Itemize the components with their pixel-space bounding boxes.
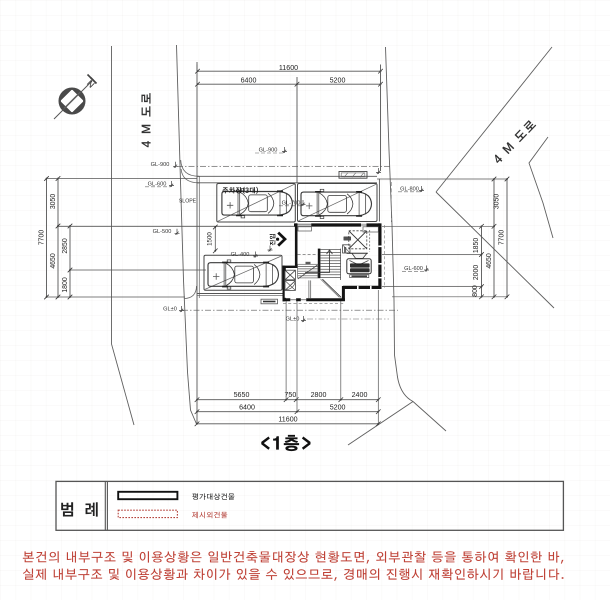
svg-text:3050: 3050 <box>50 194 57 209</box>
svg-text:7700: 7700 <box>39 230 46 245</box>
svg-text:GL-900: GL-900 <box>259 147 278 153</box>
svg-text:GL-600: GL-600 <box>148 181 167 187</box>
svg-text:5200: 5200 <box>330 77 346 85</box>
svg-text:7700: 7700 <box>499 230 506 245</box>
svg-text:5650: 5650 <box>234 391 250 399</box>
svg-text:11600: 11600 <box>279 64 298 72</box>
svg-text:6400: 6400 <box>239 404 255 412</box>
svg-text:2000: 2000 <box>473 265 480 280</box>
svg-text:GL-500: GL-500 <box>153 229 172 235</box>
svg-text:1850: 1850 <box>473 238 480 253</box>
svg-text:3050: 3050 <box>494 194 501 209</box>
svg-text:GL-900: GL-900 <box>151 162 170 168</box>
svg-text:SLOPE: SLOPE <box>179 199 197 205</box>
svg-text:6400: 6400 <box>241 77 257 85</box>
svg-text:GL-400: GL-400 <box>231 252 250 258</box>
svg-text:1800: 1800 <box>62 277 69 292</box>
svg-text:2400: 2400 <box>352 391 368 399</box>
svg-text:GL-800: GL-800 <box>400 186 419 192</box>
svg-text:5200: 5200 <box>330 404 346 412</box>
svg-text:GL±0: GL±0 <box>286 316 300 322</box>
svg-text:GL-600: GL-600 <box>404 266 423 272</box>
svg-text:11600: 11600 <box>278 415 297 423</box>
svg-text:4650: 4650 <box>486 253 493 268</box>
svg-text:2800: 2800 <box>311 391 327 399</box>
svg-text:1500: 1500 <box>207 232 214 246</box>
svg-text:4650: 4650 <box>50 253 57 268</box>
svg-text:N: N <box>85 78 97 90</box>
svg-text:GL±0: GL±0 <box>163 306 177 312</box>
svg-text:2850: 2850 <box>62 238 69 253</box>
